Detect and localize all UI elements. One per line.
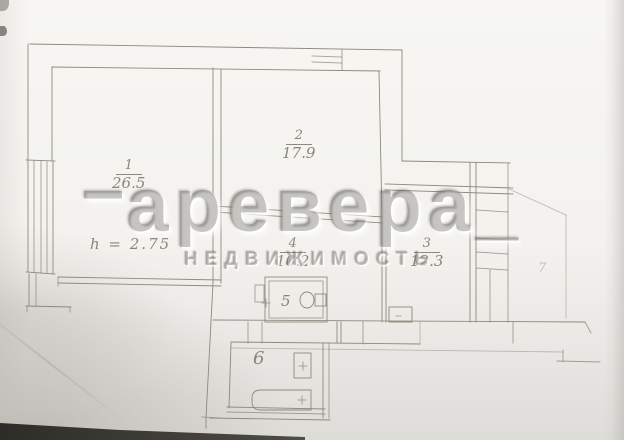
room6-walls (210, 343, 330, 420)
ceiling-height-note: h = 2.75 (90, 237, 171, 253)
window-hatch-icon (26, 160, 71, 312)
toilet-icon (300, 292, 326, 308)
scanned-floorplan-page: { "watermark": { "dash": "–", "brand": "… (0, 0, 624, 440)
room7-label: 7 (538, 262, 546, 276)
scan-edge-mark (0, 26, 7, 36)
water-heater-icon (294, 353, 311, 378)
room1-label: 1 26.5 (112, 156, 145, 191)
outer-walls (28, 44, 510, 163)
bathtub-icon (252, 390, 311, 410)
stair-treads (476, 210, 508, 322)
room1-walls (58, 277, 221, 286)
stair-break-line (509, 189, 566, 215)
washbasin-icon (255, 285, 270, 307)
room3-walls (385, 163, 513, 322)
floorplan-drawing (0, 0, 624, 440)
room5-walls (265, 277, 327, 322)
corridor-walls (213, 320, 600, 362)
wall-room1-room2 (202, 68, 221, 428)
room5-label: 5 (281, 294, 291, 310)
room4-label: 4 10.2 (276, 234, 309, 269)
room3-label: 3 12.3 (410, 234, 443, 269)
vent-shaft-icon (389, 307, 412, 322)
room6-label: 6 (253, 350, 264, 369)
wall-hall-kitchen (382, 218, 386, 322)
room2-label: 2 17.9 (282, 126, 315, 161)
floorplan: 1 26.5 2 17.9 4 10.2 3 12.3 h = 2.75 5 6… (0, 0, 624, 440)
